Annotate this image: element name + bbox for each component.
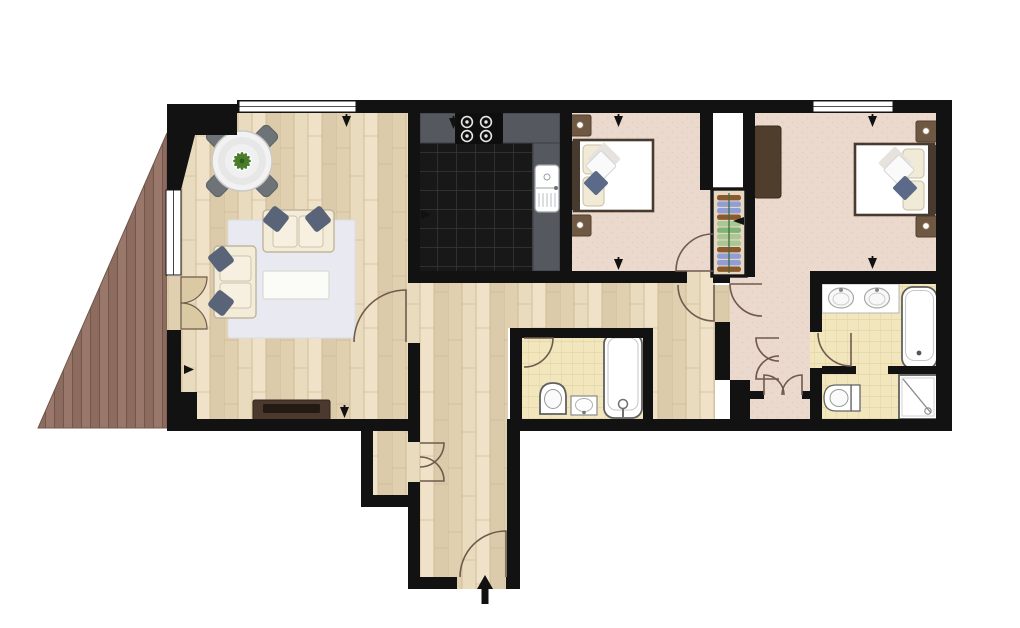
decking [38, 133, 167, 428]
ensuite-bathtub [902, 287, 937, 369]
sofa-area [207, 205, 355, 338]
hob-icon [455, 112, 503, 144]
floor-plan-page [0, 0, 1020, 628]
double-bed [572, 140, 653, 211]
window-living-room-side [166, 190, 181, 275]
window-bedroom-2 [813, 101, 893, 112]
kitchen-sink [535, 165, 559, 212]
washbasin [571, 396, 597, 415]
toilet [540, 383, 566, 414]
coffee-table [263, 271, 329, 299]
double-vanity [822, 284, 899, 313]
clothes-closet [712, 189, 746, 276]
shower-enclosure [899, 375, 937, 419]
window-living-room [239, 101, 356, 112]
floor-plan-drawing [0, 0, 1020, 628]
double-bed [855, 144, 936, 215]
ensuite-toilet [824, 385, 860, 411]
bathtub [604, 334, 642, 418]
tv-media-unit [253, 400, 330, 420]
wardrobe [754, 126, 781, 198]
